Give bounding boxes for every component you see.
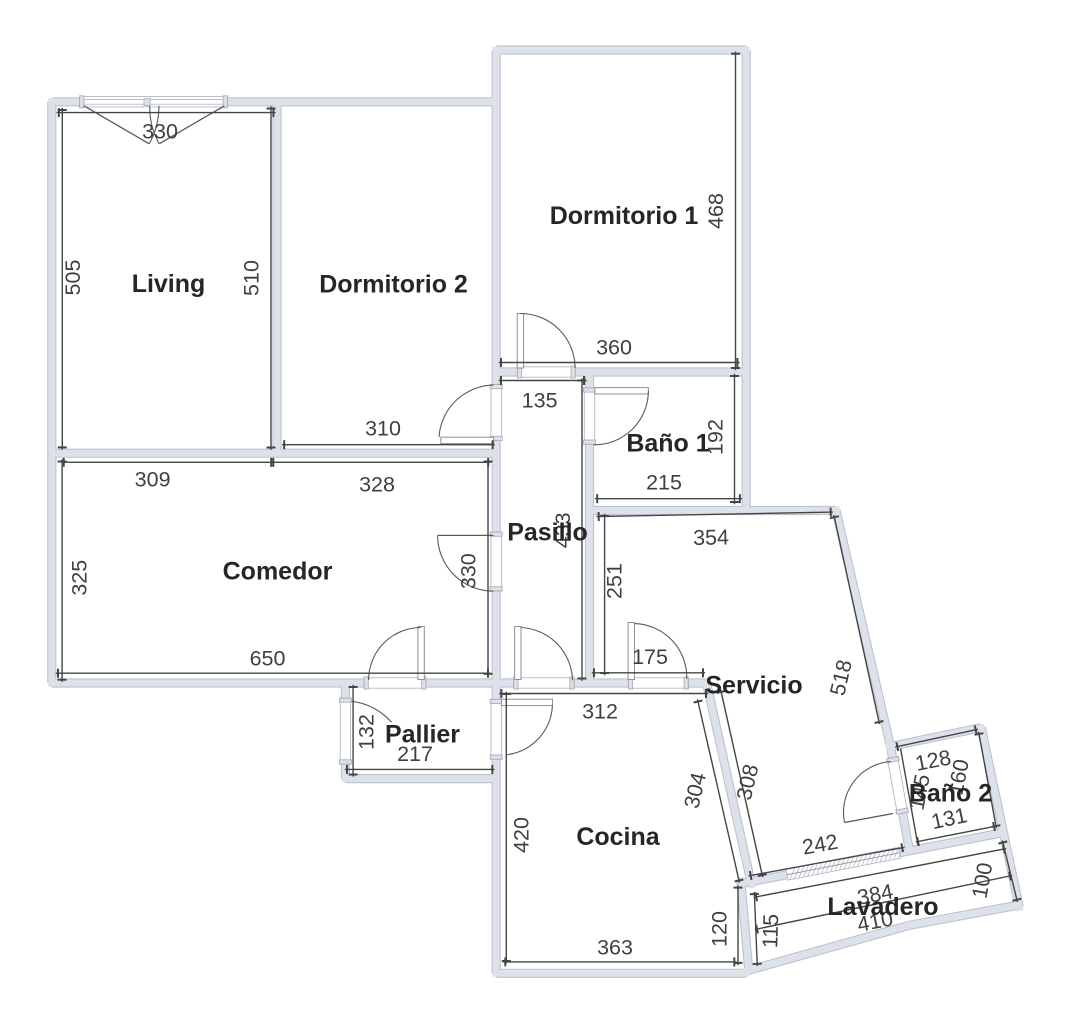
svg-text:354: 354 <box>693 525 729 550</box>
svg-text:309: 309 <box>135 468 171 492</box>
svg-text:363: 363 <box>597 936 633 960</box>
svg-text:120: 120 <box>707 911 731 947</box>
svg-text:Pasillo: Pasillo <box>507 519 588 547</box>
svg-text:312: 312 <box>582 700 618 724</box>
svg-text:Baño 1: Baño 1 <box>626 430 709 458</box>
svg-text:510: 510 <box>240 260 264 296</box>
svg-text:Dormitorio 2: Dormitorio 2 <box>319 271 468 299</box>
svg-text:468: 468 <box>704 193 728 229</box>
svg-text:Comedor: Comedor <box>223 558 333 586</box>
svg-text:Lavadero: Lavadero <box>827 893 938 921</box>
svg-text:Dormitorio 1: Dormitorio 1 <box>550 202 699 230</box>
svg-text:330: 330 <box>457 553 481 589</box>
svg-text:215: 215 <box>646 471 682 495</box>
svg-text:132: 132 <box>355 714 379 750</box>
svg-text:251: 251 <box>603 563 627 599</box>
svg-text:328: 328 <box>359 473 395 497</box>
svg-text:Pallier: Pallier <box>385 721 460 749</box>
svg-text:330: 330 <box>142 120 178 144</box>
svg-text:Cocina: Cocina <box>576 823 660 851</box>
svg-text:650: 650 <box>250 647 286 671</box>
svg-text:360: 360 <box>596 336 632 360</box>
svg-text:505: 505 <box>61 260 85 296</box>
svg-text:115: 115 <box>758 913 783 948</box>
svg-text:Baño 2: Baño 2 <box>909 780 992 808</box>
svg-text:175: 175 <box>632 645 668 669</box>
svg-text:Living: Living <box>132 270 206 298</box>
svg-text:310: 310 <box>365 417 401 441</box>
svg-text:325: 325 <box>67 560 91 596</box>
svg-text:Servicio: Servicio <box>705 672 802 700</box>
svg-text:135: 135 <box>522 388 558 412</box>
svg-text:420: 420 <box>510 817 534 853</box>
